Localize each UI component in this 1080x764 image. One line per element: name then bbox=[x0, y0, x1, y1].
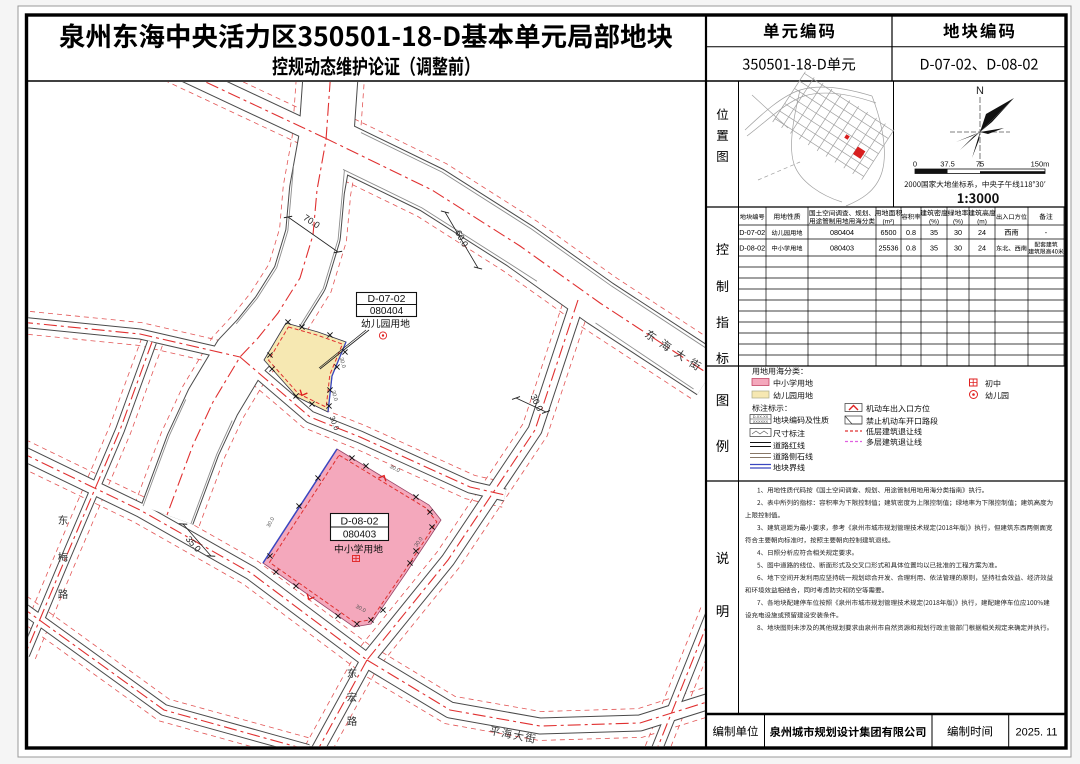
svg-text:D-08-02: D-08-02 bbox=[341, 515, 379, 527]
svg-text:150m: 150m bbox=[1031, 160, 1050, 169]
svg-text:37.5: 37.5 bbox=[940, 160, 955, 169]
svg-text:080404: 080404 bbox=[830, 228, 854, 237]
svg-text:35: 35 bbox=[930, 244, 938, 253]
svg-text:6500: 6500 bbox=[881, 228, 897, 237]
svg-text:XXXXXX: XXXXXX bbox=[753, 420, 769, 424]
svg-text:2025. 11: 2025. 11 bbox=[1015, 727, 1057, 739]
svg-text:30: 30 bbox=[954, 228, 962, 237]
svg-text:(%): (%) bbox=[929, 219, 939, 226]
svg-text:080403: 080403 bbox=[830, 244, 854, 253]
svg-text:0.8: 0.8 bbox=[906, 244, 916, 253]
svg-text:D-08-02: D-08-02 bbox=[739, 244, 765, 253]
svg-text:D-XX-XX: D-XX-XX bbox=[753, 415, 769, 419]
svg-text:24: 24 bbox=[978, 244, 986, 253]
svg-text:35: 35 bbox=[930, 228, 938, 237]
svg-text:30: 30 bbox=[954, 244, 962, 253]
svg-text:(m²): (m²) bbox=[883, 219, 895, 226]
svg-text:(%): (%) bbox=[953, 219, 963, 226]
svg-text:N: N bbox=[976, 85, 984, 97]
svg-text:D-07-02: D-07-02 bbox=[368, 293, 406, 305]
svg-text:D-07-02: D-07-02 bbox=[739, 228, 765, 237]
svg-text:25536: 25536 bbox=[879, 244, 899, 253]
svg-text:0: 0 bbox=[913, 160, 917, 169]
svg-text:24: 24 bbox=[978, 228, 986, 237]
svg-text:(m): (m) bbox=[977, 219, 987, 226]
svg-text:080404: 080404 bbox=[370, 306, 404, 317]
svg-text:75: 75 bbox=[976, 160, 984, 169]
svg-text:0.8: 0.8 bbox=[906, 228, 916, 237]
svg-text:080403: 080403 bbox=[343, 530, 377, 541]
